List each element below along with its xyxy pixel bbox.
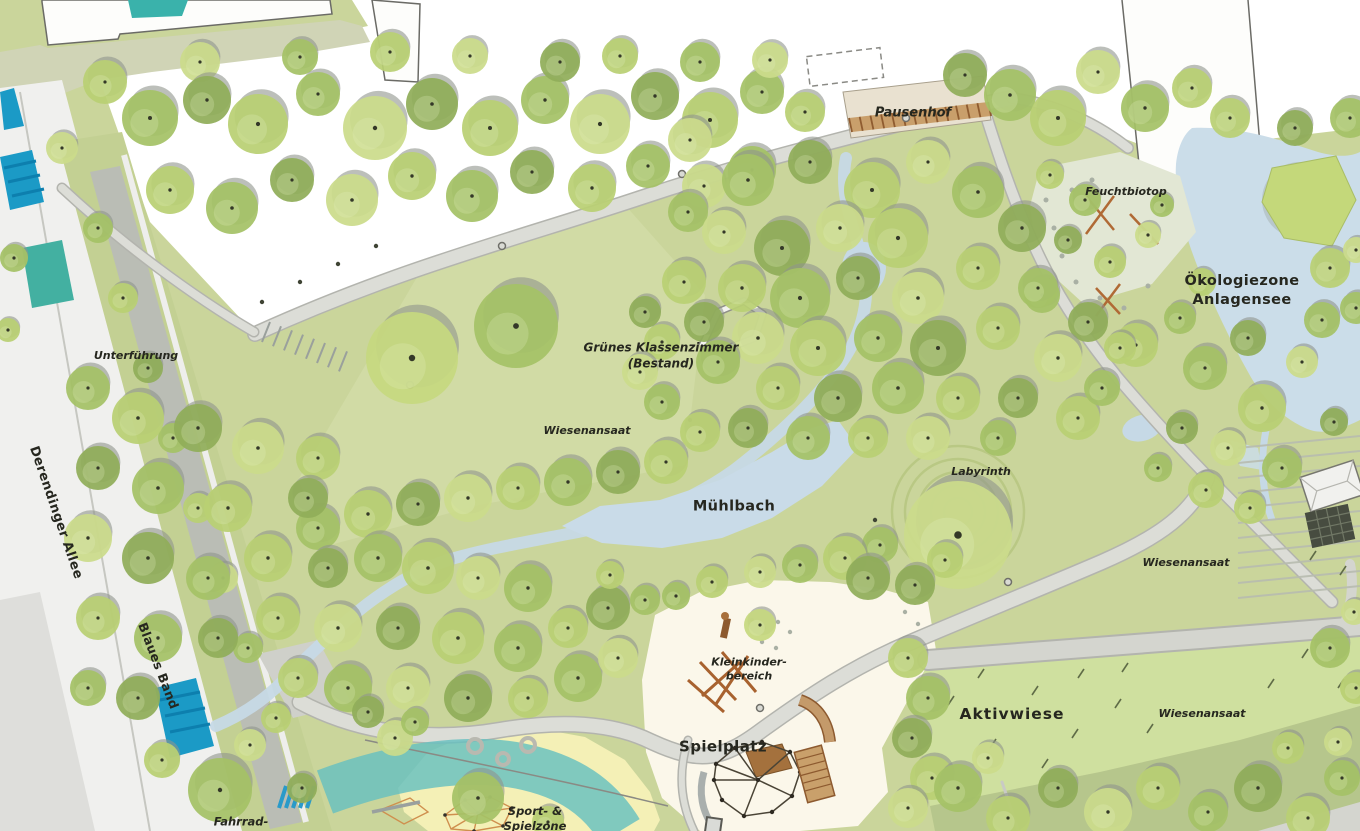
site-plan: Pausenhof Feuchtbiotop Ökologiezone Anla… — [0, 0, 1360, 831]
site-plan-map — [0, 0, 1360, 831]
